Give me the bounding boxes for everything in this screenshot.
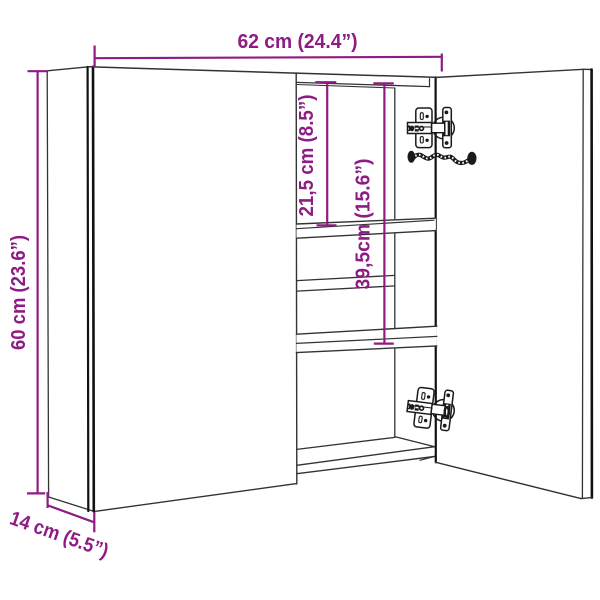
svg-text:39,5cm (15.6”): 39,5cm (15.6”) <box>352 159 374 290</box>
svg-text:62 cm (24.4”): 62 cm (24.4”) <box>238 31 358 53</box>
svg-text:21,5 cm (8.5”): 21,5 cm (8.5”) <box>296 95 318 217</box>
svg-text:60 cm (23.6”): 60 cm (23.6”) <box>8 235 30 350</box>
